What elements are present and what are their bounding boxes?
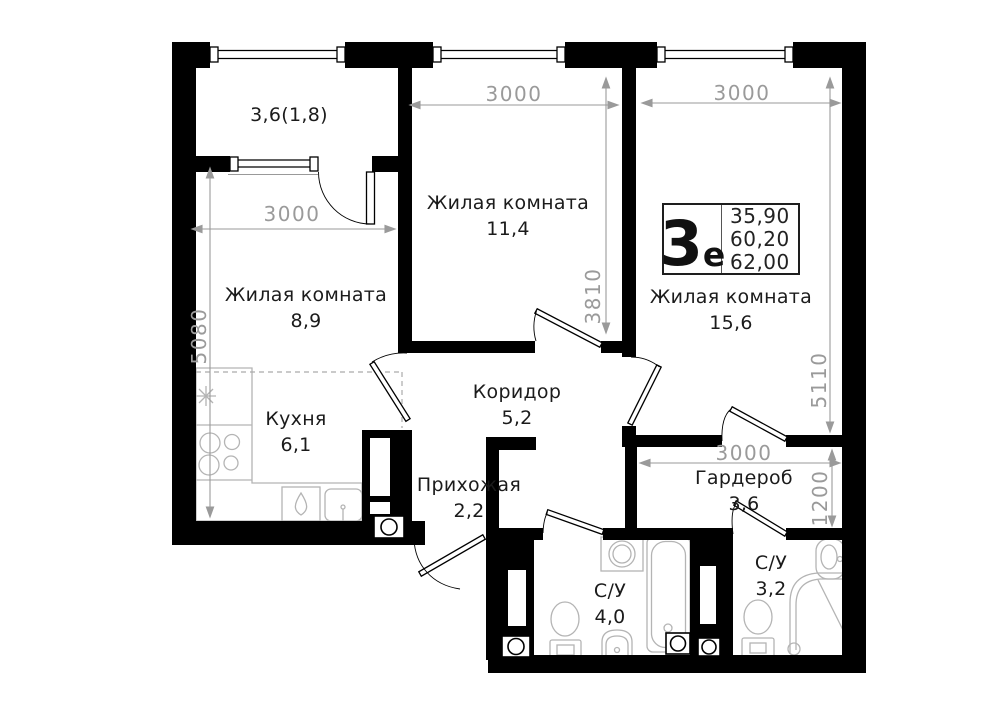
toilet-icon (742, 600, 774, 658)
label-room-11: Жилая комната 11,4 (408, 190, 608, 242)
wardrobe-door-leaf (730, 407, 787, 441)
label-corridor: Коридор 5,2 (437, 379, 597, 431)
area-values: 35,90 60,20 62,00 (722, 205, 798, 273)
apartment-type-badge: 3е 35,90 60,20 62,00 (662, 203, 800, 275)
cooktop-star-icon (196, 386, 216, 406)
floor-plan-drawing (0, 0, 1000, 707)
balcony-door-leaf (367, 172, 375, 224)
floor-plan-page: 3,6(1,8) Жилая комната 11,4 Жилая комнат… (0, 0, 1000, 707)
room15-door-leaf (628, 365, 661, 425)
dim-room11-width: 3000 (469, 83, 559, 105)
area-value-living: 35,90 (730, 205, 798, 228)
entrance-door-leaf (419, 535, 486, 576)
area-value-main: 60,20 (730, 228, 798, 251)
dim-room15-height: 5110 (808, 335, 830, 425)
label-wardrobe: Гардероб 3,6 (664, 465, 824, 517)
dim-room15-width: 3000 (697, 82, 787, 104)
washbasin-icon (602, 630, 632, 655)
label-kitchen: Кухня 6,1 (216, 406, 376, 458)
dim-room8-width: 3000 (247, 203, 337, 225)
type-code: 3е (664, 205, 722, 273)
label-bathroom-2: С/У 3,2 (731, 550, 811, 602)
bath1-door-leaf (546, 510, 604, 535)
dim-room11-height: 3810 (582, 251, 604, 341)
washing-machine-icon (601, 537, 643, 571)
dim-wardrobe-height: 1200 (809, 453, 831, 543)
dim-wardrobe-width: 3000 (699, 442, 789, 464)
label-room-15: Жилая комната 15,6 (631, 284, 831, 336)
area-value-total: 62,00 (730, 251, 798, 274)
dim-room8-height: 5080 (188, 291, 210, 381)
label-hallway: Прихожая 2,2 (389, 472, 549, 524)
label-bathroom-1: С/У 4,0 (570, 578, 650, 630)
label-room-8: Жилая комната 8,9 (206, 282, 406, 334)
label-balcony: 3,6(1,8) (189, 102, 389, 128)
